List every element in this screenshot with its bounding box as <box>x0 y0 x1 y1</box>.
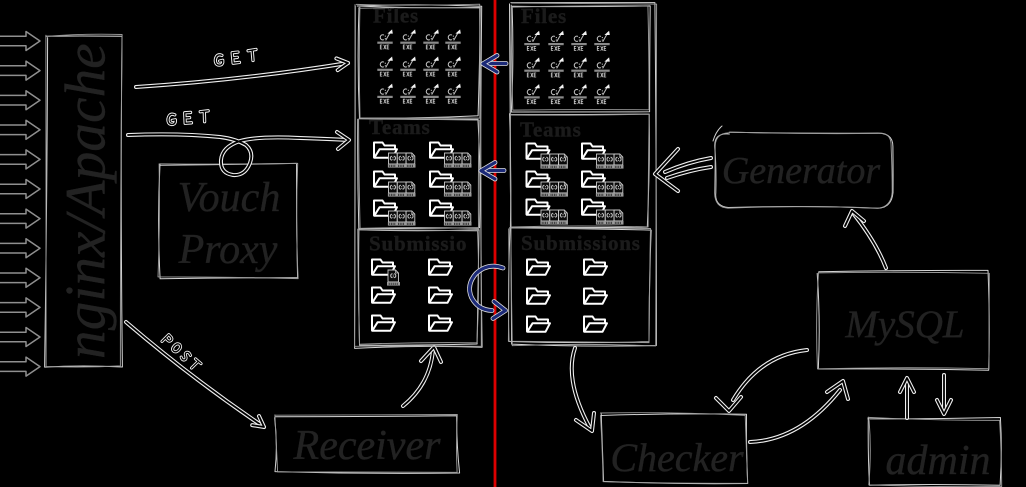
svg-text:Files: Files <box>373 4 419 28</box>
svg-text:Teams: Teams <box>369 115 431 139</box>
svg-text:Receiver: Receiver <box>293 423 442 469</box>
svg-text:Vouch: Vouch <box>178 175 281 221</box>
svg-text:MySQL: MySQL <box>844 303 964 346</box>
svg-text:Submissio: Submissio <box>369 232 467 256</box>
svg-text:Submissions: Submissions <box>521 231 641 255</box>
svg-text:Generator: Generator <box>722 150 881 192</box>
svg-text:Checker: Checker <box>610 435 744 480</box>
svg-text:Files: Files <box>521 4 567 28</box>
svg-text:Teams: Teams <box>520 118 582 142</box>
svg-text:admin: admin <box>886 438 991 484</box>
svg-text:nginx/Apache: nginx/Apache <box>55 43 118 359</box>
svg-text:Proxy: Proxy <box>178 227 278 273</box>
